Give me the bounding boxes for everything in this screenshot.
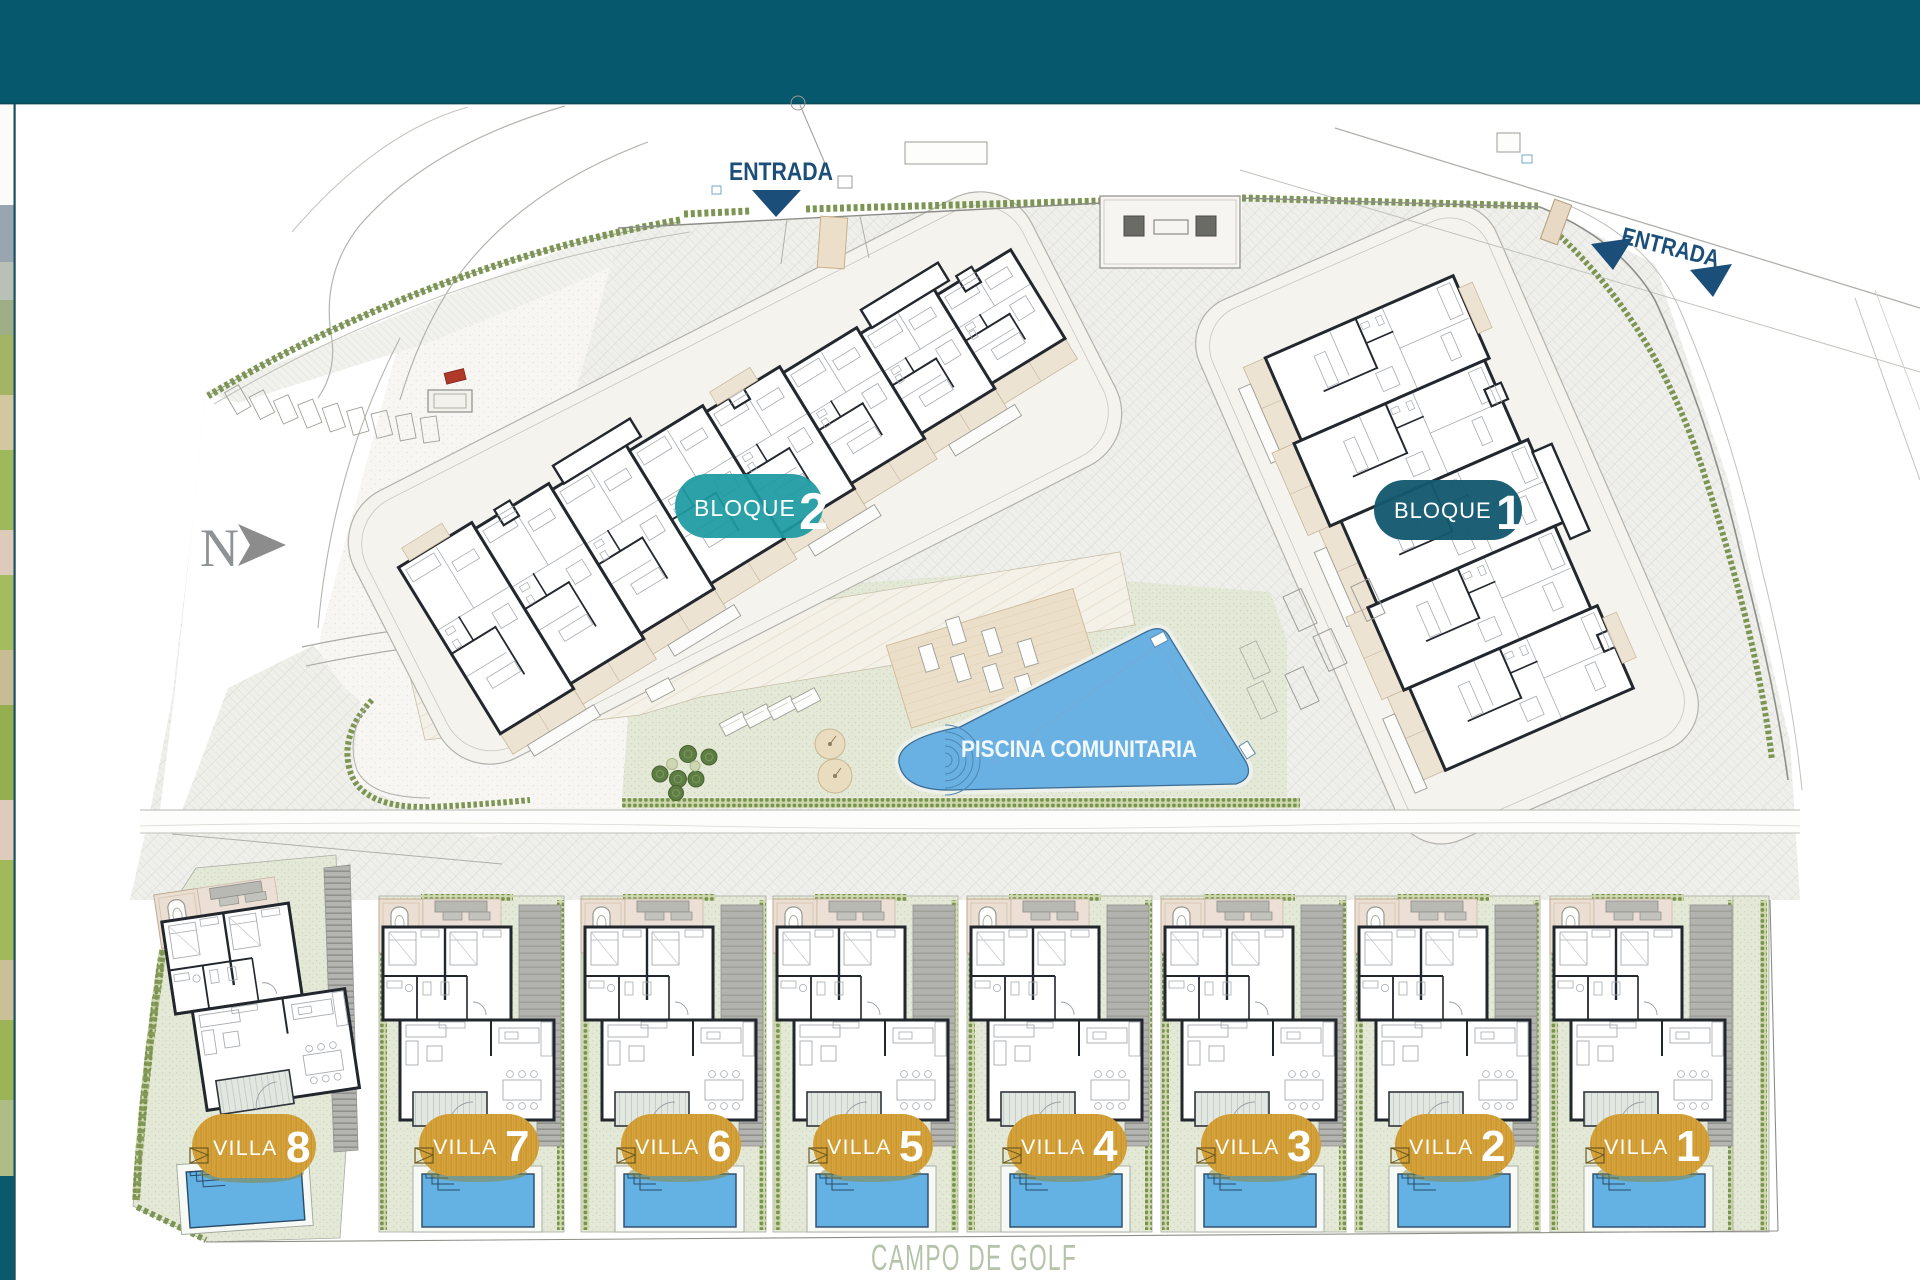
svg-text:N: N [200,518,239,578]
svg-text:8: 8 [286,1123,310,1172]
svg-text:VILLA: VILLA [1409,1135,1474,1159]
svg-text:2: 2 [799,483,828,541]
svg-text:CAMPO DE GOLF: CAMPO DE GOLF [871,1237,1077,1278]
svg-text:VILLA: VILLA [1021,1135,1086,1159]
svg-text:BLOQUE: BLOQUE [694,495,796,521]
svg-text:ENTRADA: ENTRADA [729,158,833,186]
svg-text:5: 5 [899,1122,923,1171]
svg-text:VILLA: VILLA [213,1136,278,1160]
svg-text:VILLA: VILLA [635,1135,700,1159]
svg-text:VILLA: VILLA [1604,1135,1669,1159]
svg-text:VILLA: VILLA [827,1135,892,1159]
svg-text:BLOQUE: BLOQUE [1394,498,1492,523]
svg-text:4: 4 [1093,1122,1118,1171]
svg-text:7: 7 [505,1122,529,1171]
svg-text:1: 1 [1496,487,1523,540]
svg-text:2: 2 [1481,1122,1505,1171]
svg-text:PISCINA COMUNITARIA: PISCINA COMUNITARIA [961,736,1197,763]
svg-text:VILLA: VILLA [1215,1135,1280,1159]
svg-text:1: 1 [1676,1122,1700,1171]
svg-text:VILLA: VILLA [433,1135,498,1159]
svg-text:3: 3 [1287,1122,1311,1171]
svg-text:6: 6 [707,1122,731,1171]
